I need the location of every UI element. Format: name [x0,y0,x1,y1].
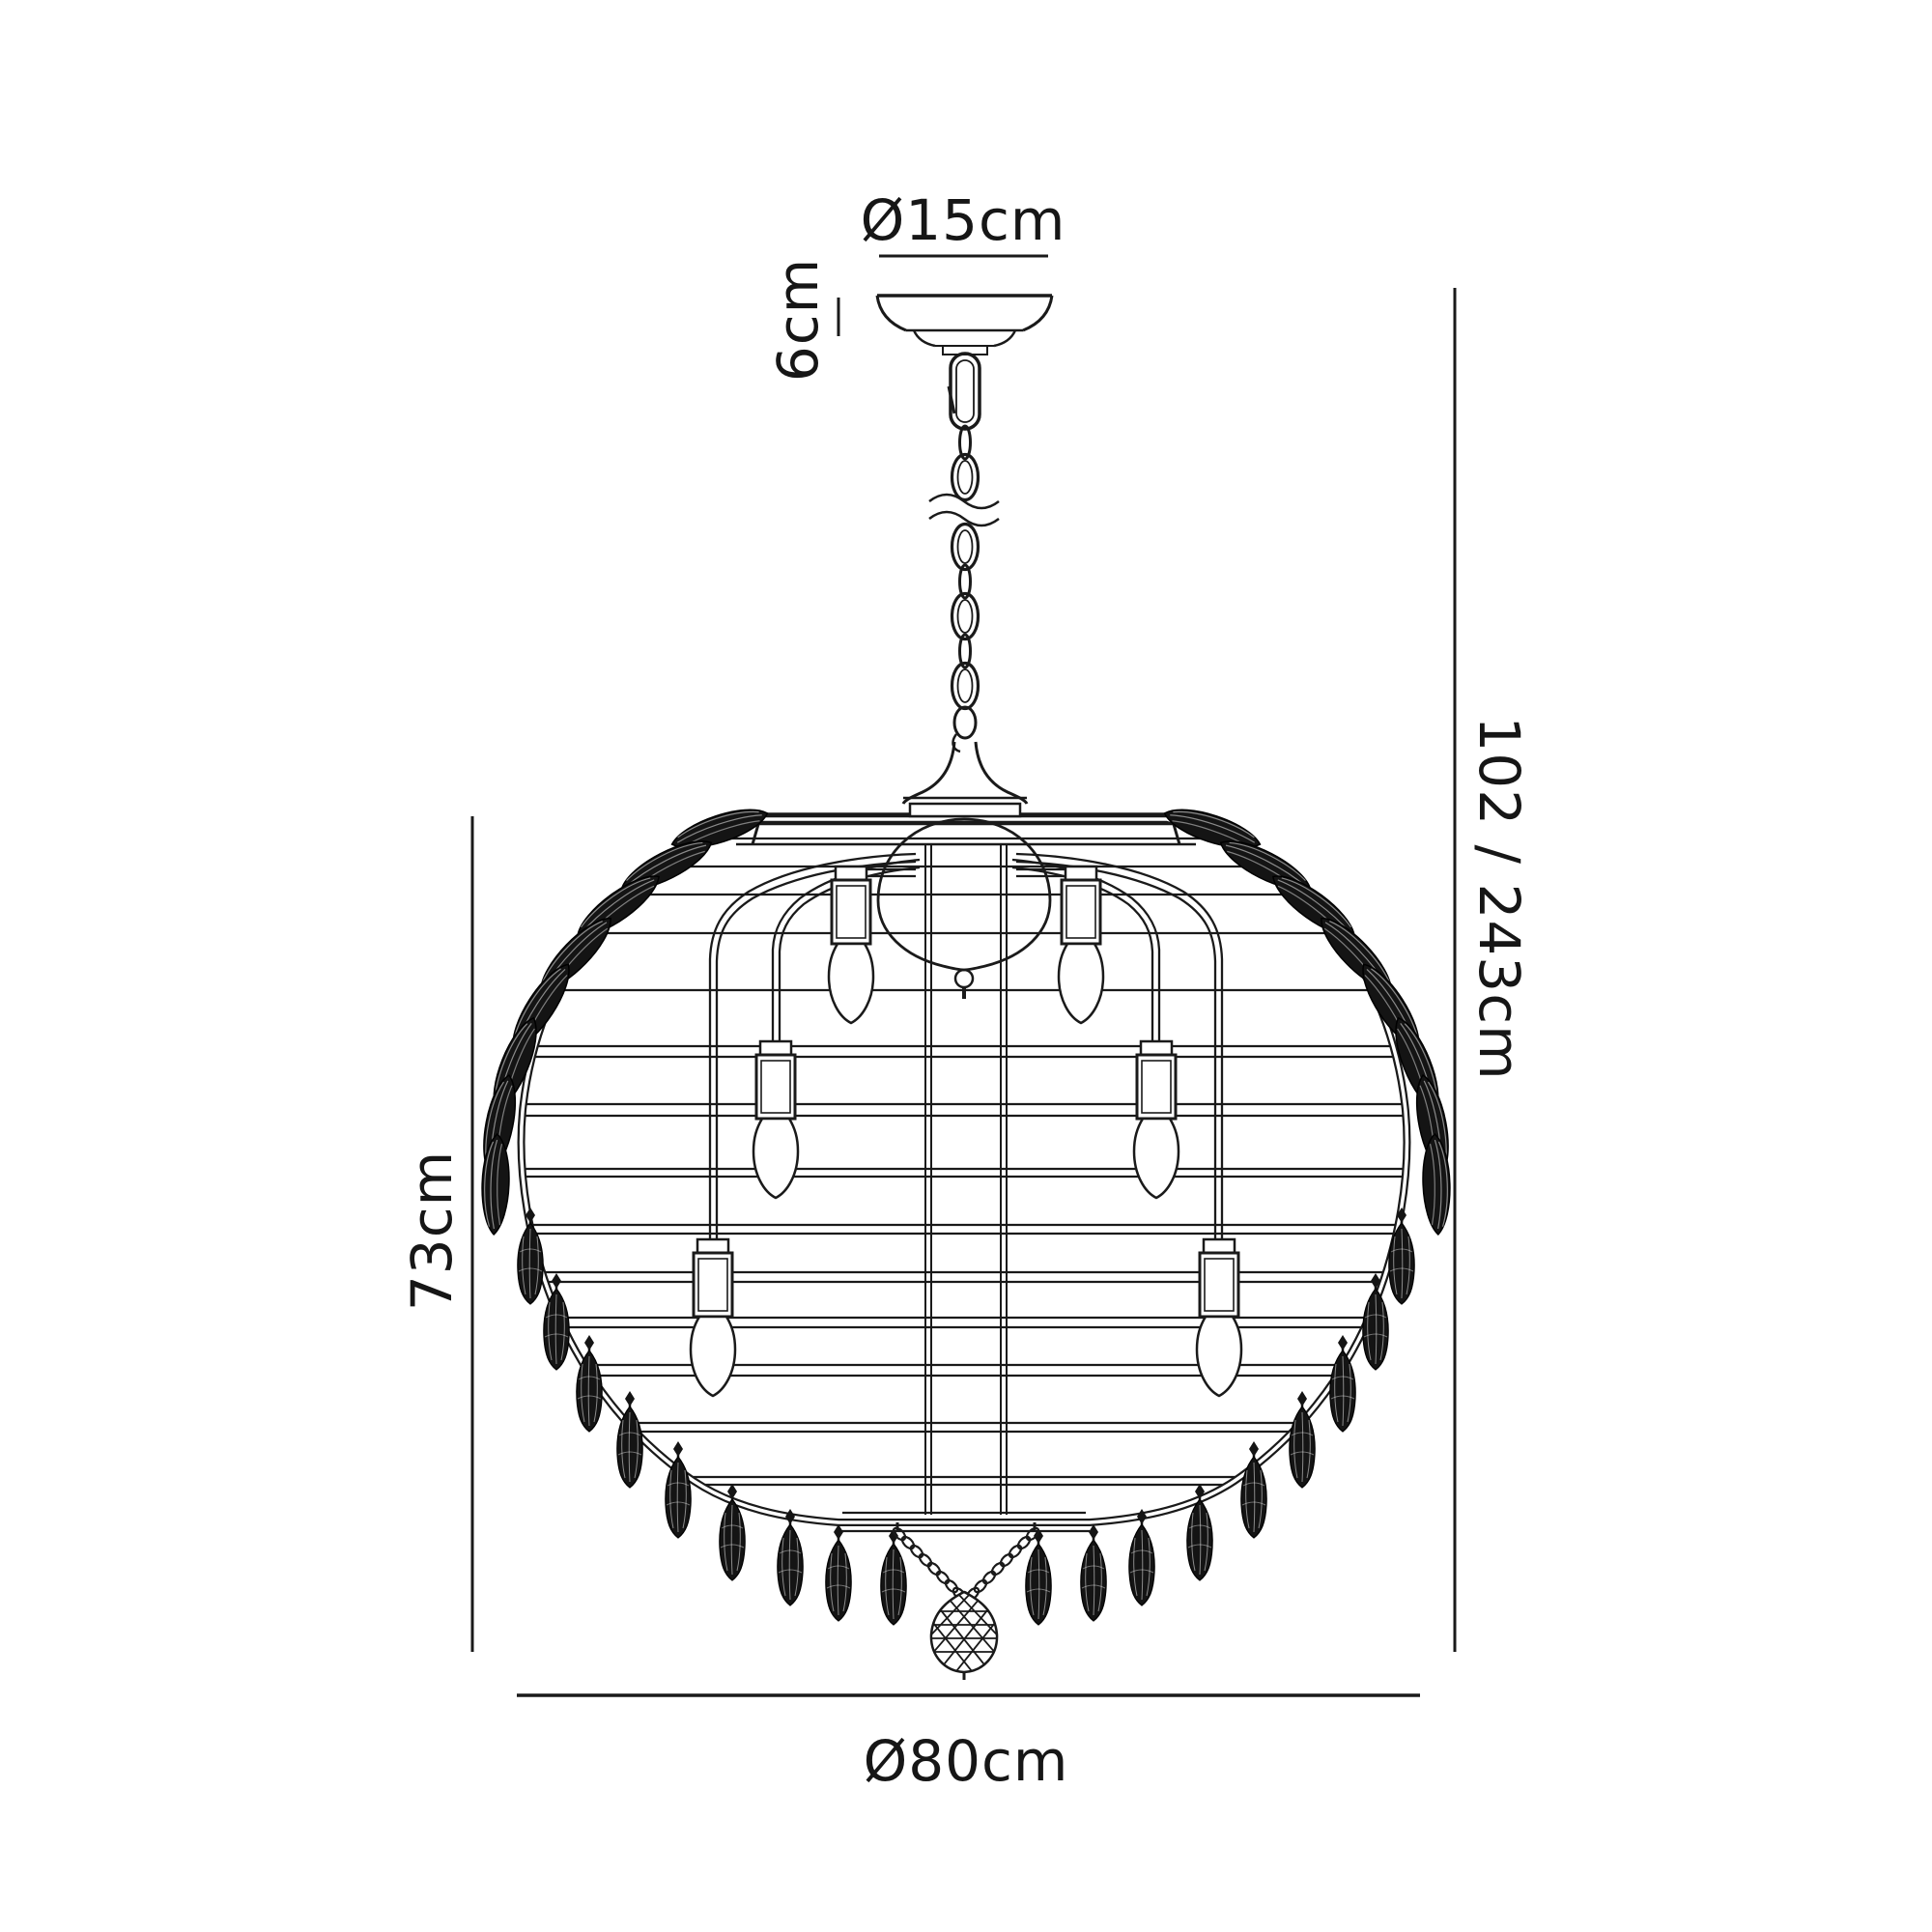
chain-connector-loop [951,354,980,429]
body-right-half [965,801,1456,1625]
chain-hook [954,707,976,738]
glass-sphere [878,819,1050,999]
ceiling-canopy [877,296,1052,355]
body-left-half [476,801,967,1625]
stem-collar [910,804,1020,816]
diagram-canvas: Ø15cm 6cm 102 / 243cm 73cm Ø80cm [0,0,1932,1932]
body-outline [522,819,1407,1522]
stem [903,742,1027,816]
sphere-finial-knob [955,970,973,987]
label-canopy-diameter: Ø15cm [861,187,1066,253]
label-height-range: 102 / 243cm [1466,716,1532,1080]
chandelier-dimension-diagram: Ø15cm 6cm 102 / 243cm 73cm Ø80cm [0,0,1932,1932]
label-canopy-height: 6cm [765,258,831,382]
label-body-height: 73cm [399,1151,465,1311]
faceted-ball-finial [898,1592,1030,1681]
suspension-chain [929,354,999,752]
label-body-diameter: Ø80cm [864,1728,1069,1794]
